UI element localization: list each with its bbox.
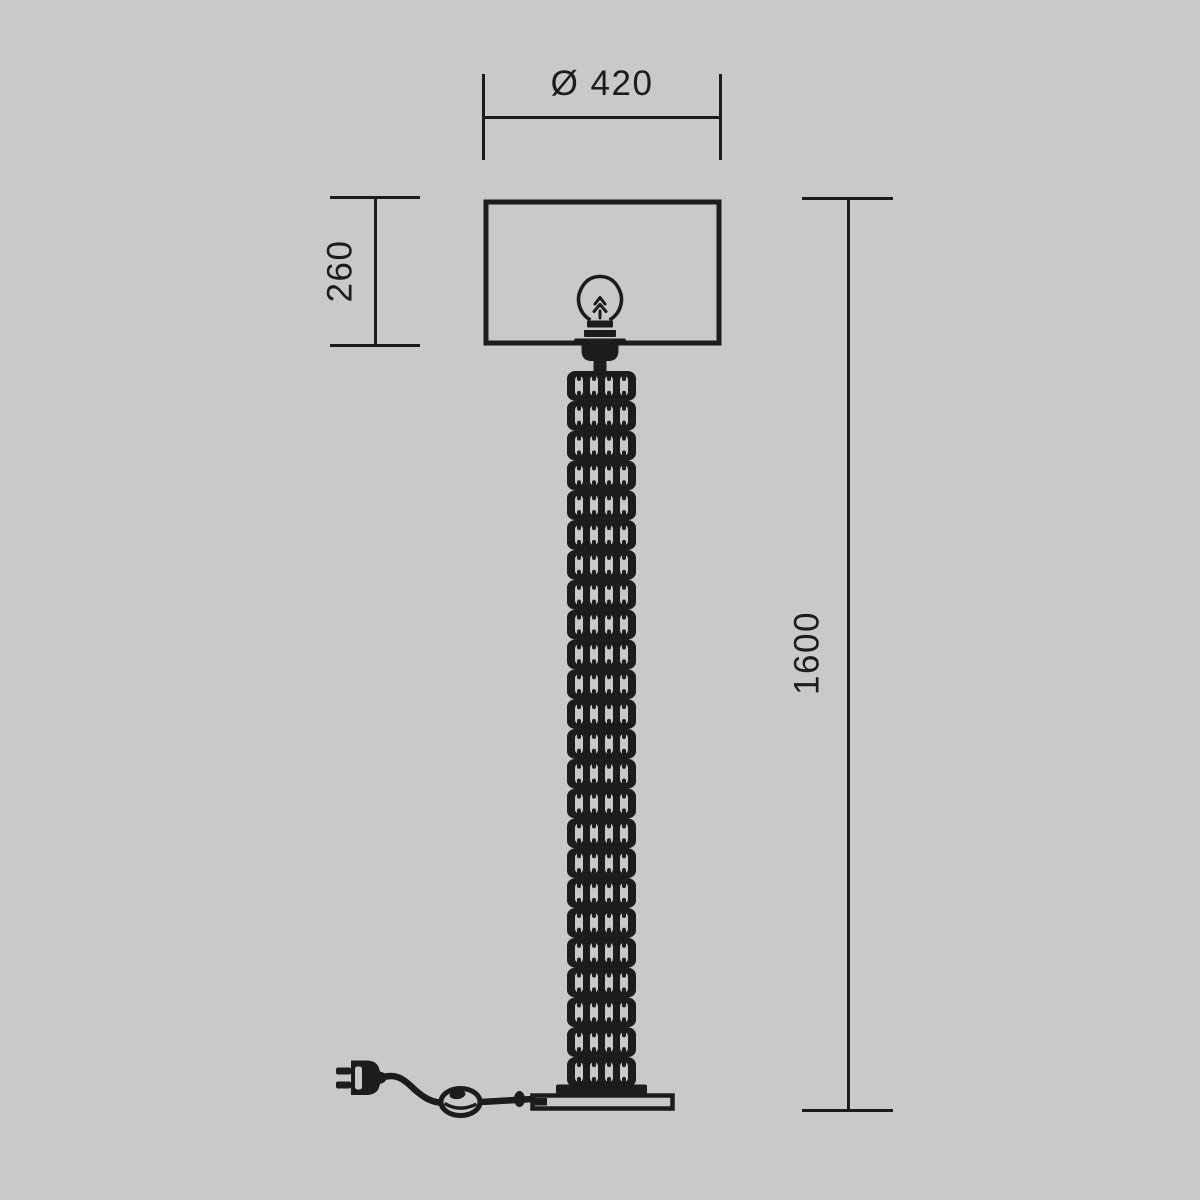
bulb-socket xyxy=(574,321,626,373)
cord-ferrule xyxy=(514,1091,525,1107)
power-plug xyxy=(336,1061,386,1096)
drawing-canvas: Ø 420 260 1600 xyxy=(0,0,1200,1200)
bulb-filament-icon xyxy=(594,298,606,319)
light-bulb xyxy=(574,277,626,373)
diameter-label: Ø 420 xyxy=(483,66,721,101)
column-foot xyxy=(556,1085,647,1095)
crystal-column xyxy=(556,371,647,1094)
base-plate xyxy=(533,1096,673,1109)
total-height-label: 1600 xyxy=(790,611,825,695)
lamp-line-art xyxy=(0,0,1200,1200)
plug-slot xyxy=(355,1067,362,1090)
foot-switch xyxy=(441,1089,480,1116)
shade-height-label: 260 xyxy=(323,240,358,303)
plug-prong xyxy=(336,1068,351,1075)
plug-prong xyxy=(336,1082,351,1089)
